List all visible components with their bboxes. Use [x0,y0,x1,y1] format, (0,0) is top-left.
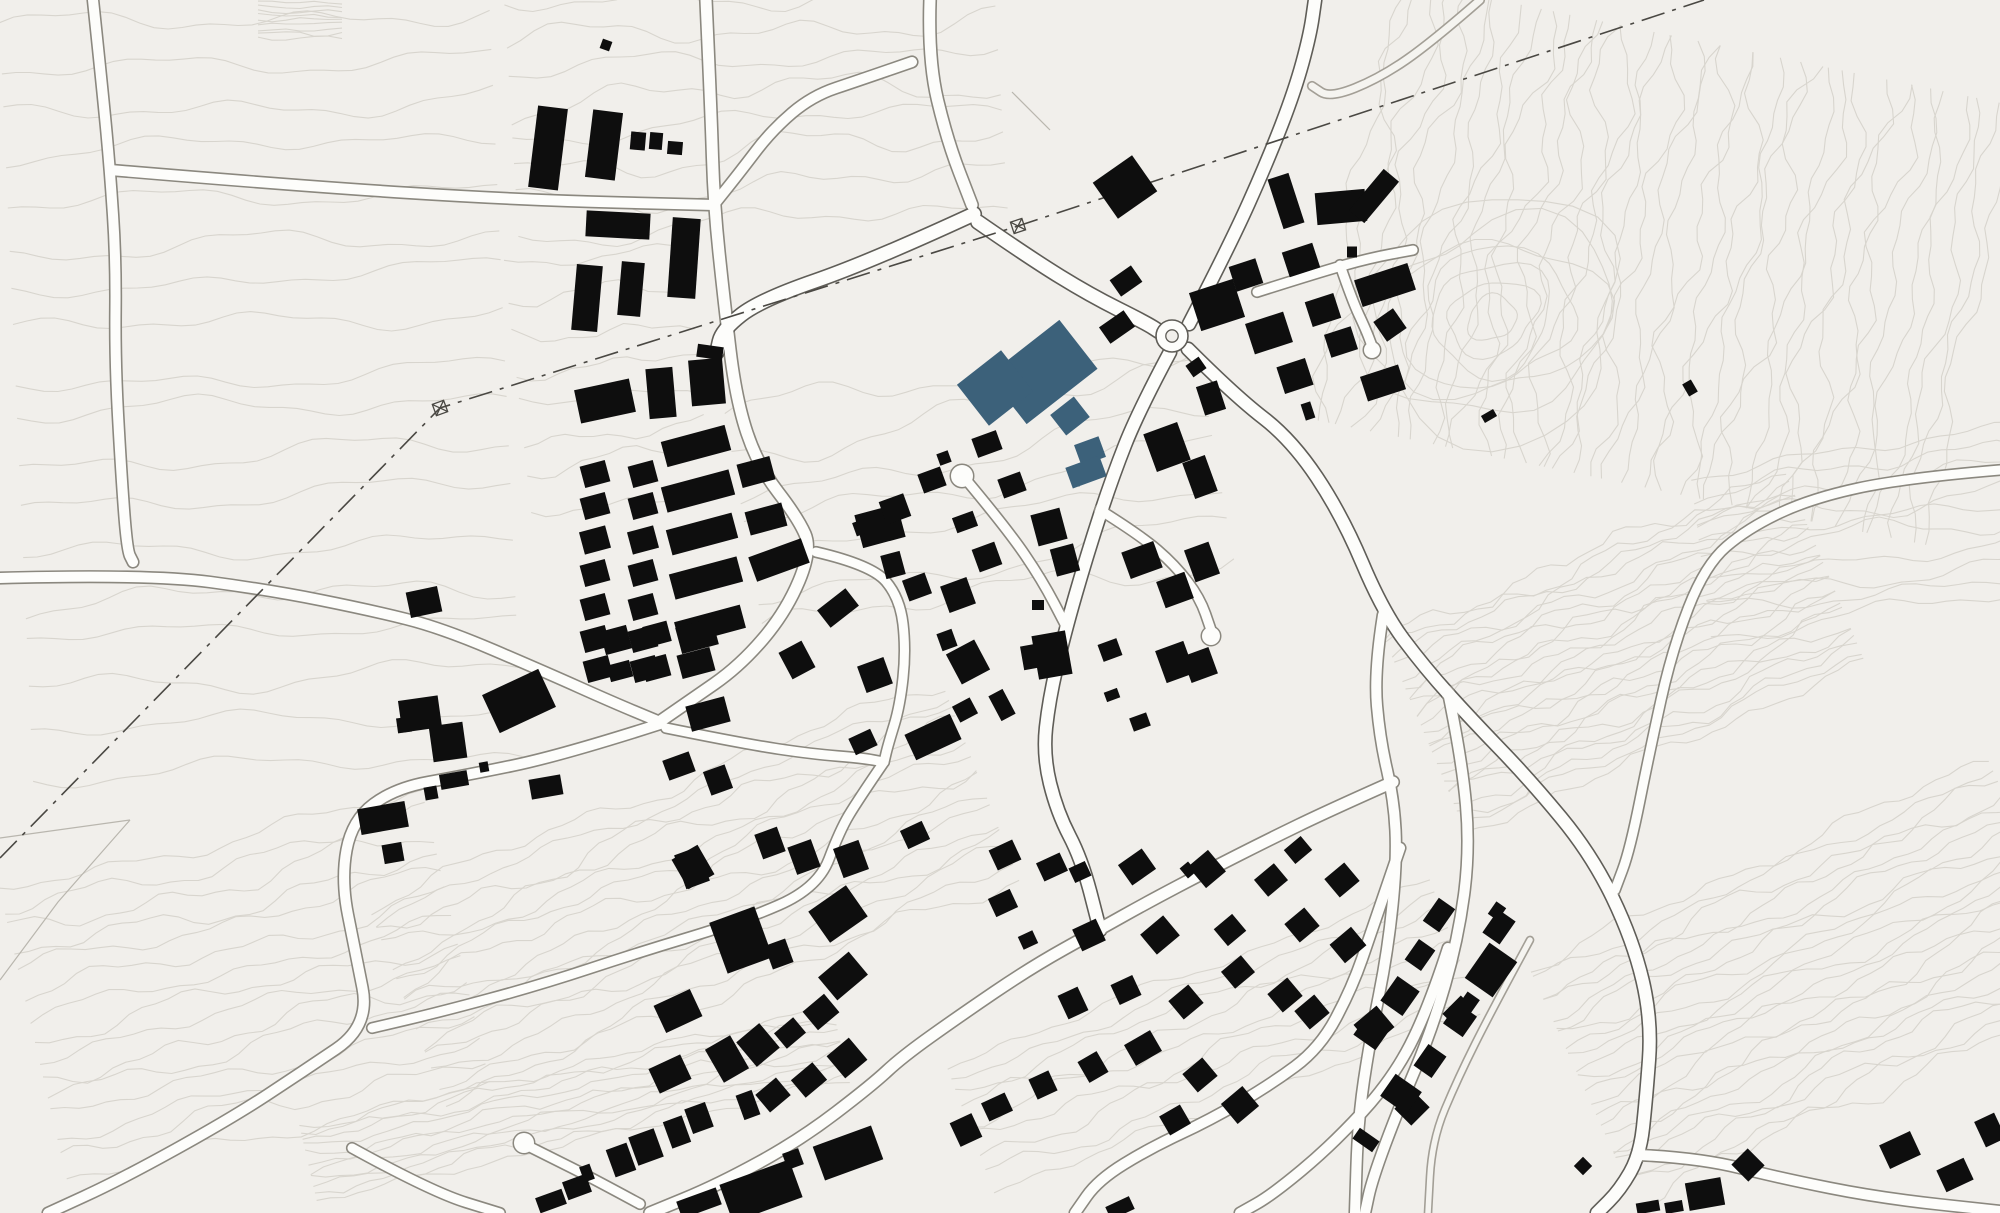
building-footprint [667,141,683,155]
building-footprint [1347,247,1357,258]
building-footprint [688,358,726,407]
cul-de-sac [1364,342,1380,358]
cul-de-sac [1202,627,1220,645]
building-footprint [617,261,645,317]
cul-de-sac [514,1133,534,1153]
building-footprint [429,722,468,762]
building-footprint [479,761,490,772]
building-footprint [585,210,650,239]
building-footprint [667,217,701,299]
building-footprint [649,132,663,150]
building-footprint [396,717,412,734]
building-footprint [423,785,438,800]
cul-de-sac [951,465,973,487]
map-viewport[interactable] [0,0,2000,1213]
site-plan-map [0,0,2000,1213]
building-footprint [382,842,405,864]
building-footprint [1032,600,1044,610]
roundabout-island [1166,330,1178,342]
building-footprint [630,131,647,150]
building-footprint [645,367,676,419]
roundabout [1156,320,1188,352]
